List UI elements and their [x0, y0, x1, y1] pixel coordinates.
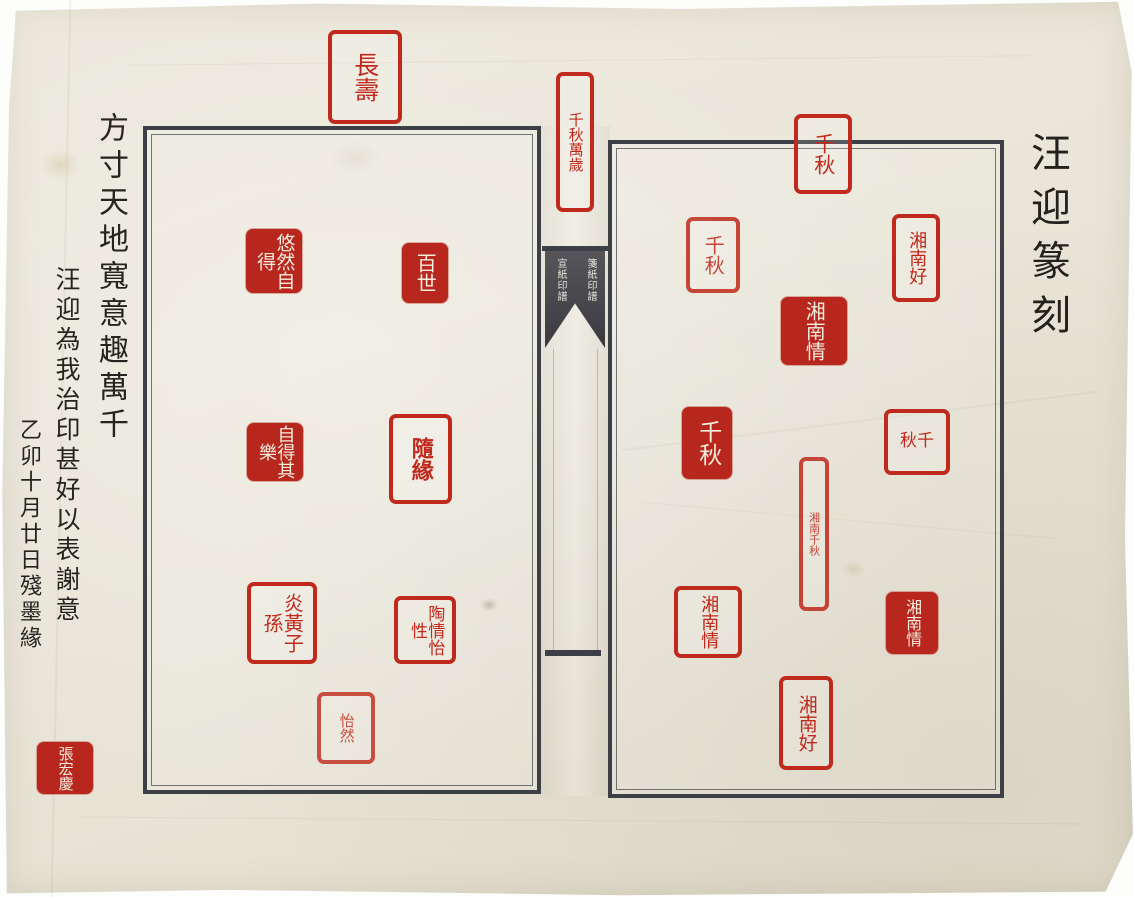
album-title-calligraphy: 汪迎篆刻 [1018, 132, 1076, 382]
fishtail-label-col-left: 宣紙印譜 [554, 258, 566, 302]
right-page-seal-10: 湘南好 [779, 676, 833, 770]
album-photo: 箋紙印譜 宣紙印譜 長壽 千秋萬歲 悠然自得 百世 自得其樂 隨緣 炎黃子孫 陶… [0, 0, 1134, 897]
left-page-seal-4: 隨緣 [389, 414, 452, 504]
signature-seal: 張宏慶 [37, 742, 93, 794]
right-page-seal-4: 湘南情 [781, 297, 847, 365]
left-page-inner-border [151, 134, 533, 786]
right-page-seal-1: 千秋 [794, 114, 852, 194]
fishtail-label-col-right: 箋紙印譜 [584, 258, 596, 302]
spine-fold-line [597, 349, 598, 652]
right-page-seal-5: 千秋 [682, 407, 732, 479]
right-page-seal-9: 湘南情 [886, 592, 938, 654]
spine-lower-bar [545, 650, 601, 656]
left-page-seal-1: 悠然自得 [246, 229, 302, 293]
left-margin-calligraphy-column-1: 方寸天地寬意趣萬千 [88, 112, 132, 542]
right-page-seal-3: 湘南好 [892, 214, 940, 302]
left-page-seal-3: 自得其樂 [247, 423, 303, 481]
spine-upper-bar [542, 246, 608, 251]
top-left-seal: 長壽 [328, 30, 402, 124]
center-fold [540, 126, 610, 796]
left-margin-calligraphy-column-2: 汪迎為我治印甚好以表謝意 [48, 266, 84, 706]
left-margin-calligraphy-column-3: 乙卯十月廿日殘墨緣 [12, 418, 44, 798]
spine-top-seal: 千秋萬歲 [556, 72, 594, 212]
left-page-seal-2: 百世 [402, 243, 448, 303]
left-page-seal-5: 炎黃子孫 [247, 582, 317, 664]
left-page-seal-7: 怡然 [317, 692, 375, 764]
right-page-seal-7: 湘南千秋 [799, 457, 829, 611]
right-page-seal-2: 千秋 [686, 217, 740, 293]
spine-fold-line [553, 349, 554, 652]
right-page-seal-6: 秋千 [884, 409, 950, 475]
left-page-seal-6: 陶情怡性 [394, 596, 456, 664]
right-page-seal-8: 湘南情 [674, 586, 742, 658]
